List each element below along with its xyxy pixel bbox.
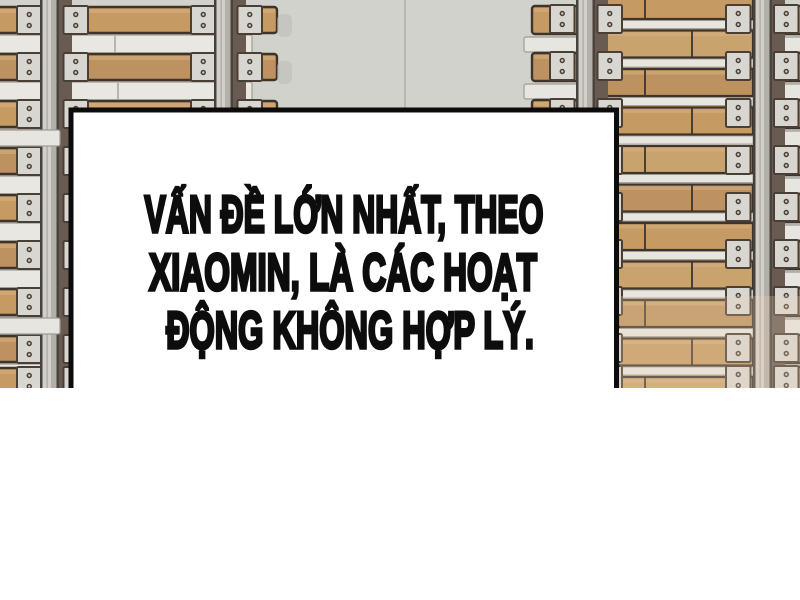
svg-text:ĐỘNG KHÔNG HỢP LÝ.: ĐỘNG KHÔNG HỢP LÝ.	[166, 301, 534, 360]
svg-text:XIAOMIN, LÀ CÁC HOẠT: XIAOMIN, LÀ CÁC HOẠT	[149, 242, 537, 302]
svg-text:VẤN ĐỀ LỚN NHẤT, THEO: VẤN ĐỀ LỚN NHẤT, THEO	[145, 185, 544, 244]
